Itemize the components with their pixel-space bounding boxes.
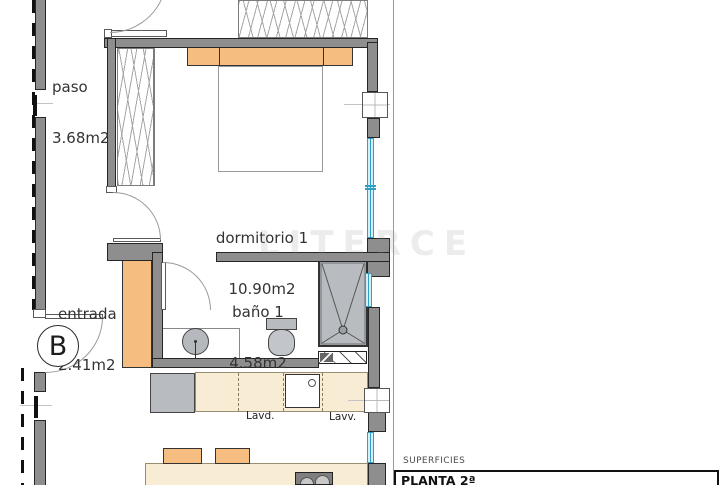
wall-left-mid bbox=[35, 117, 46, 312]
window-mark-left-lower bbox=[34, 396, 38, 418]
washing-machine-knob bbox=[308, 379, 316, 387]
room-name: baño 1 bbox=[208, 304, 308, 321]
wall-right-kitchen-1 bbox=[368, 412, 386, 432]
stool-1 bbox=[163, 448, 202, 464]
window-kitchen bbox=[367, 432, 374, 463]
wardrobe-hatch-upper-room bbox=[238, 0, 368, 38]
wall-right-kitchen-2 bbox=[368, 463, 386, 485]
room-area: 4.58m2 bbox=[208, 355, 308, 372]
label-dishwasher: Lavv. bbox=[329, 411, 356, 423]
wall-right-upper bbox=[367, 42, 378, 92]
entrada-cabinet bbox=[122, 260, 152, 368]
duct-dark-cell bbox=[320, 353, 333, 362]
door-arc-paso-top bbox=[110, 0, 167, 33]
washbasin-dot bbox=[194, 340, 197, 343]
room-name: entrada bbox=[58, 306, 117, 323]
burner bbox=[300, 477, 314, 485]
legend-planta-label: PLANTA 2ª bbox=[396, 472, 717, 485]
bed-headboard bbox=[219, 47, 324, 66]
window-mark-left-upper bbox=[33, 95, 37, 116]
wall-left-top bbox=[35, 0, 46, 90]
boundary-dashed-line-lower bbox=[21, 368, 24, 485]
room-name: paso bbox=[52, 79, 110, 96]
room-label-bano: baño 1 4.58m2 bbox=[208, 270, 308, 406]
floor-plan-canvas: paso 3.68m2 dormitorio 1 10.90m2 entrada… bbox=[0, 0, 726, 485]
door-arc-dormitorio bbox=[113, 192, 161, 240]
block-marker-b: B bbox=[37, 325, 79, 367]
counter-divider bbox=[322, 373, 323, 411]
block-marker-letter: B bbox=[49, 331, 68, 362]
wall-right-bano bbox=[368, 307, 380, 388]
sheet-divider-line bbox=[393, 0, 394, 485]
wardrobe-hatch-dormitorio bbox=[117, 48, 155, 186]
room-area: 3.68m2 bbox=[52, 130, 110, 147]
burner bbox=[315, 475, 330, 485]
shower-drain bbox=[339, 326, 347, 334]
label-washer: Lavd. bbox=[246, 410, 275, 422]
wall-top bbox=[104, 38, 378, 48]
window-axis-line bbox=[36, 103, 53, 104]
window-dormitorio-tick bbox=[365, 185, 376, 190]
kitchen-island bbox=[145, 463, 368, 485]
nightstand-left bbox=[187, 47, 220, 66]
wall-right-mid bbox=[367, 118, 380, 138]
pillar-lower bbox=[364, 388, 390, 413]
window-bano bbox=[365, 273, 372, 307]
legend-planta-box: PLANTA 2ª bbox=[394, 470, 719, 485]
room-label-paso: paso 3.68m2 bbox=[52, 45, 110, 181]
bed bbox=[218, 66, 323, 172]
pillar-upper bbox=[362, 92, 388, 118]
nightstand-right bbox=[323, 47, 353, 66]
wall-left-low-1 bbox=[34, 372, 46, 392]
boundary-dashed-line-upper bbox=[32, 0, 35, 310]
legend-title: SUPERFICIES bbox=[403, 456, 465, 466]
watermark-text: LITERCE bbox=[258, 224, 476, 264]
fridge bbox=[150, 373, 195, 413]
cooktop bbox=[295, 472, 333, 485]
stool-2 bbox=[215, 448, 250, 464]
wall-left-low-2 bbox=[34, 420, 46, 485]
